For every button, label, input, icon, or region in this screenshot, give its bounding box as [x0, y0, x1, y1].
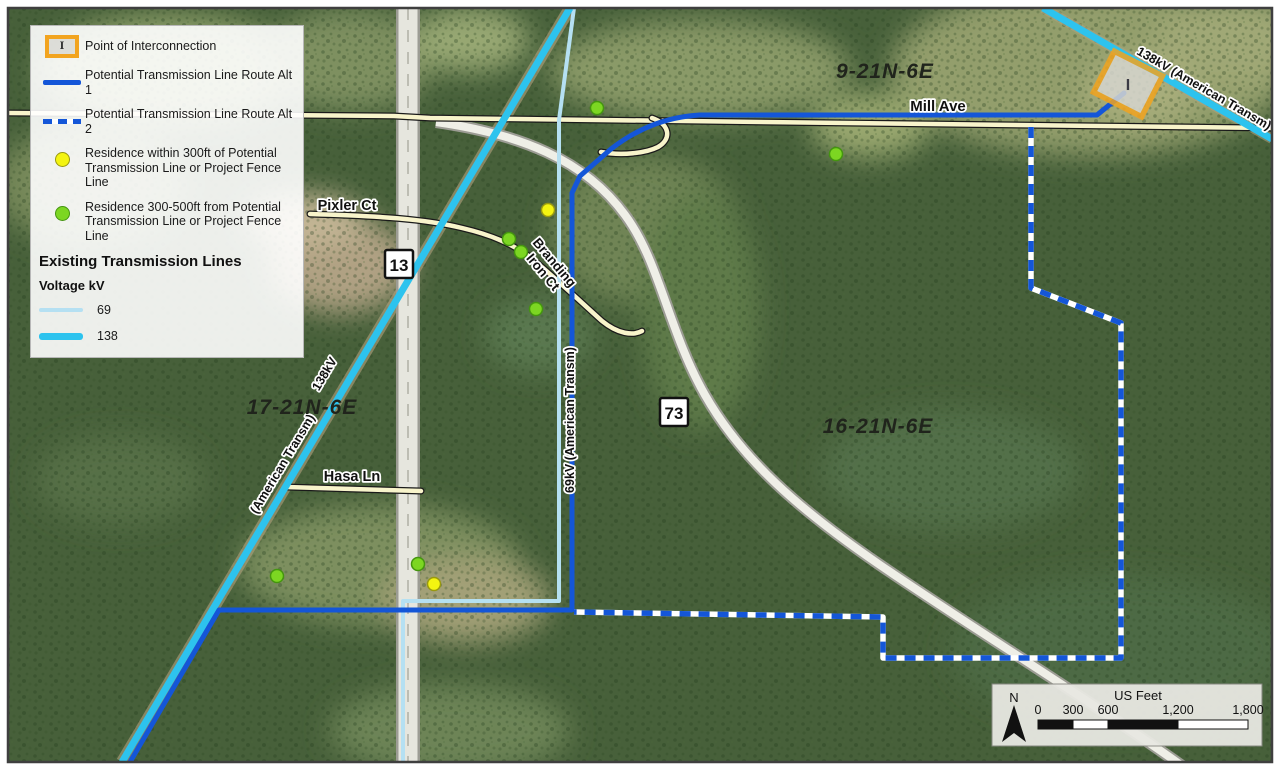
legend-item-alt1: Potential Transmission Line Route Alt 1	[39, 68, 295, 97]
north-label: N	[1009, 690, 1018, 705]
legend-res500-line1: Residence 300-500ft from Potential	[85, 200, 295, 215]
map-document: I Mill Ave Pixler Ct Hasa Ln Branding	[0, 0, 1280, 768]
legend-item-poi: I Point of Interconnection	[39, 35, 295, 58]
residence-dot-300ft	[542, 204, 555, 217]
residence-300ft-swatch-icon	[55, 152, 70, 167]
svg-text:0: 0	[1035, 703, 1042, 717]
residence-dot-500ft	[503, 233, 516, 246]
legend-item-69kv: 69	[39, 303, 295, 317]
legend-res300-line2: Transmission Line or Project Fence Line	[85, 161, 295, 190]
svg-text:300: 300	[1063, 703, 1084, 717]
residence-dot-500ft	[830, 148, 843, 161]
mill-ave-label: Mill Ave	[910, 98, 966, 115]
residence-dot-500ft	[530, 303, 543, 316]
scale-bar	[1038, 720, 1248, 729]
township-16-label: 16-21N-6E	[823, 415, 934, 438]
residence-500ft-swatch-icon	[55, 206, 70, 221]
pixler-ct-label: Pixler Ct	[318, 198, 377, 214]
legend-item-alt2: Potential Transmission Line Route Alt 2	[39, 107, 295, 136]
kv69-swatch-icon	[39, 308, 83, 312]
svg-text:73: 73	[665, 404, 684, 423]
legend-alt2-label: Potential Transmission Line Route Alt 2	[85, 107, 295, 136]
svg-text:69kV (American Transm): 69kV (American Transm)	[563, 347, 577, 493]
scale-units-label: US Feet	[1114, 688, 1162, 703]
legend-item-res500: Residence 300-500ft from Potential Trans…	[39, 200, 295, 244]
kv138-swatch-icon	[39, 333, 83, 340]
residence-dot-500ft	[271, 570, 284, 583]
scale-bar-panel: N US Feet 0 300 600 1,200 1,800	[992, 684, 1264, 746]
legend-res300-line1: Residence within 300ft of Potential	[85, 146, 295, 161]
residence-dot-500ft	[591, 102, 604, 115]
poi-swatch-icon: I	[45, 35, 79, 58]
svg-text:1,800: 1,800	[1232, 703, 1263, 717]
svg-text:1,200: 1,200	[1162, 703, 1193, 717]
legend-voltage-label: Voltage kV	[39, 278, 295, 293]
svg-text:600: 600	[1098, 703, 1119, 717]
township-9-label: 9-21N-6E	[836, 60, 934, 83]
legend-item-res300: Residence within 300ft of Potential Tran…	[39, 146, 295, 190]
legend-existing-heading: Existing Transmission Lines	[39, 253, 295, 270]
route-alt2-swatch-icon	[43, 119, 81, 124]
residence-dot-300ft	[428, 578, 441, 591]
residence-dot-500ft	[412, 558, 425, 571]
township-17-label: 17-21N-6E	[247, 396, 358, 419]
legend-138kv-label: 138	[97, 329, 118, 343]
legend-item-138kv: 138	[39, 329, 295, 343]
legend-poi-label: Point of Interconnection	[85, 39, 216, 54]
kv69-label: 69kV (American Transm)	[563, 347, 577, 493]
hwy13-shield: 13	[385, 250, 413, 278]
hwy73-shield: 73	[660, 398, 688, 426]
residence-dot-500ft	[515, 246, 528, 259]
legend-69kv-label: 69	[97, 303, 111, 317]
legend-res500-line2: Transmission Line or Project Fence Line	[85, 214, 295, 243]
svg-text:13: 13	[390, 256, 409, 275]
route-alt1-swatch-icon	[43, 80, 81, 85]
map-legend: I Point of Interconnection Potential Tra…	[30, 25, 304, 358]
poi-marker-letter: I	[1126, 77, 1130, 94]
hasa-ln-label: Hasa Ln	[324, 469, 380, 485]
legend-alt1-label: Potential Transmission Line Route Alt 1	[85, 68, 295, 97]
